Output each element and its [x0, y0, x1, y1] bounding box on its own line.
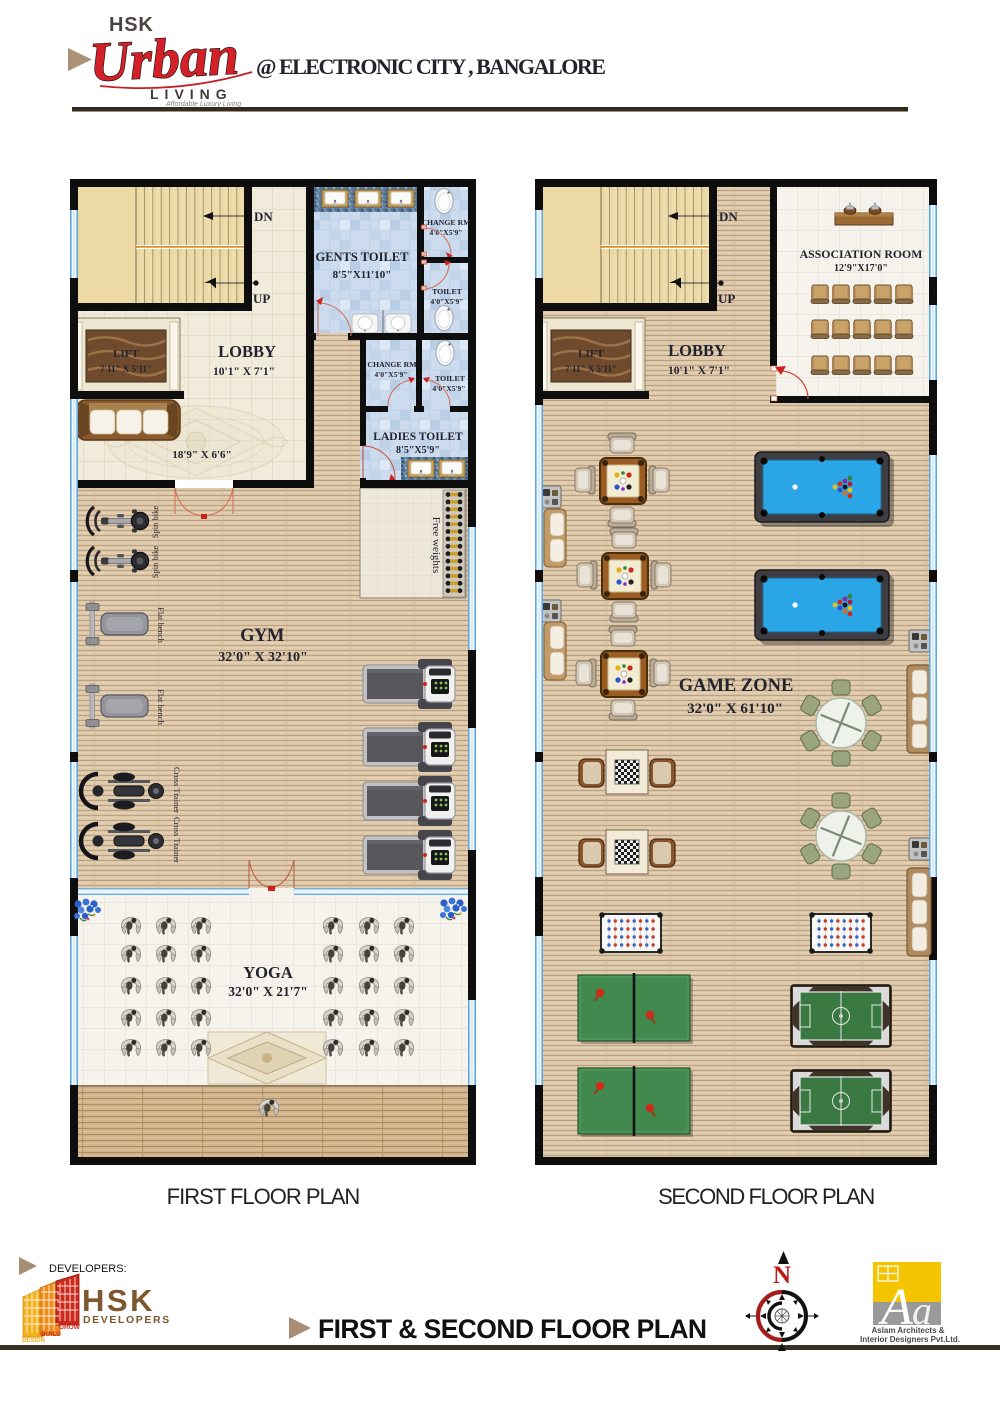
svg-text:Interior Designers Pvt.Ltd.: Interior Designers Pvt.Ltd. [860, 1335, 960, 1344]
svg-text:4'0"X5'9": 4'0"X5'9" [433, 384, 466, 393]
svg-text:Cross Trainer: Cross Trainer [172, 817, 182, 863]
svg-text:LOBBY: LOBBY [668, 341, 726, 360]
svg-text:7'11" X 5'11": 7'11" X 5'11" [565, 364, 617, 374]
svg-text:Urban: Urban [88, 24, 240, 94]
svg-text:Free weights: Free weights [430, 517, 442, 574]
svg-text:Affordable Luxury Living: Affordable Luxury Living [165, 101, 241, 108]
svg-text:DEVELOPERS: DEVELOPERS [83, 1314, 171, 1326]
svg-text:LOBBY: LOBBY [218, 342, 276, 361]
svg-text:BUILD: BUILD [41, 1331, 61, 1338]
svg-text:12'9"X17'0": 12'9"X17'0" [834, 263, 888, 274]
svg-text:FIRST & SECOND FLOOR PLAN: FIRST & SECOND FLOOR PLAN [318, 1314, 706, 1344]
svg-text:7'11" X 5'11": 7'11" X 5'11" [100, 364, 152, 374]
svg-text:DESIGN: DESIGN [22, 1338, 45, 1344]
svg-text:Flat bench: Flat bench [156, 689, 166, 725]
svg-text:DN: DN [719, 209, 738, 224]
svg-text:18'9" X 6'6": 18'9" X 6'6" [172, 449, 231, 461]
svg-text:UP: UP [253, 291, 270, 306]
svg-text:DEVELOPERS:: DEVELOPERS: [49, 1263, 127, 1275]
svg-text:4'0"X5'9": 4'0"X5'9" [375, 370, 408, 379]
svg-text:@ ELECTRONIC CITY , BANGALORE: @ ELECTRONIC CITY , BANGALORE [256, 54, 605, 79]
svg-text:Spin bike: Spin bike [150, 506, 160, 539]
svg-text:YOGA: YOGA [243, 963, 293, 982]
svg-text:LIVING: LIVING [150, 86, 233, 102]
svg-text:FIRST FLOOR PLAN: FIRST FLOOR PLAN [167, 1184, 360, 1209]
svg-text:8'5"X5'9": 8'5"X5'9" [396, 445, 440, 456]
svg-text:32'0" X 32'10": 32'0" X 32'10" [218, 650, 307, 665]
svg-text:CHANGE RM: CHANGE RM [367, 360, 417, 369]
svg-text:10'1" X 7'1": 10'1" X 7'1" [213, 366, 275, 378]
svg-text:SECOND FLOOR PLAN: SECOND FLOOR PLAN [658, 1184, 874, 1209]
svg-text:Flat bench: Flat bench [156, 607, 166, 643]
svg-text:UP: UP [718, 291, 735, 306]
svg-text:Aslam Architects &: Aslam Architects & [871, 1326, 944, 1335]
svg-text:GAME ZONE: GAME ZONE [679, 676, 794, 696]
svg-text:GYM: GYM [240, 626, 284, 646]
svg-text:32'0" X 21'7": 32'0" X 21'7" [228, 984, 308, 999]
svg-text:TOILET: TOILET [435, 374, 466, 383]
svg-text:LIFT: LIFT [113, 348, 139, 360]
svg-text:CHANGE RM: CHANGE RM [421, 218, 471, 227]
svg-text:4'0"X5'9": 4'0"X5'9" [430, 228, 463, 237]
svg-text:4'0"X5'9": 4'0"X5'9" [431, 297, 464, 306]
svg-text:10'1" X 7'1": 10'1" X 7'1" [668, 365, 730, 377]
svg-text:ASSOCIATION ROOM: ASSOCIATION ROOM [800, 247, 923, 261]
svg-text:N: N [773, 1262, 791, 1289]
svg-text:32'0" X 61'10": 32'0" X 61'10" [687, 701, 783, 717]
svg-text:GENTS TOILET: GENTS TOILET [316, 250, 410, 264]
svg-text:Spin bike: Spin bike [150, 546, 160, 579]
svg-text:Cross Trainer: Cross Trainer [172, 767, 182, 813]
svg-text:LADIES TOILET: LADIES TOILET [373, 431, 463, 443]
svg-text:8'5"X11'10": 8'5"X11'10" [333, 269, 392, 281]
svg-text:LIFT: LIFT [578, 348, 604, 360]
svg-text:HSK: HSK [82, 1283, 155, 1318]
svg-text:GROW: GROW [59, 1324, 81, 1331]
svg-text:DN: DN [254, 209, 273, 224]
svg-text:TOILET: TOILET [432, 287, 463, 296]
